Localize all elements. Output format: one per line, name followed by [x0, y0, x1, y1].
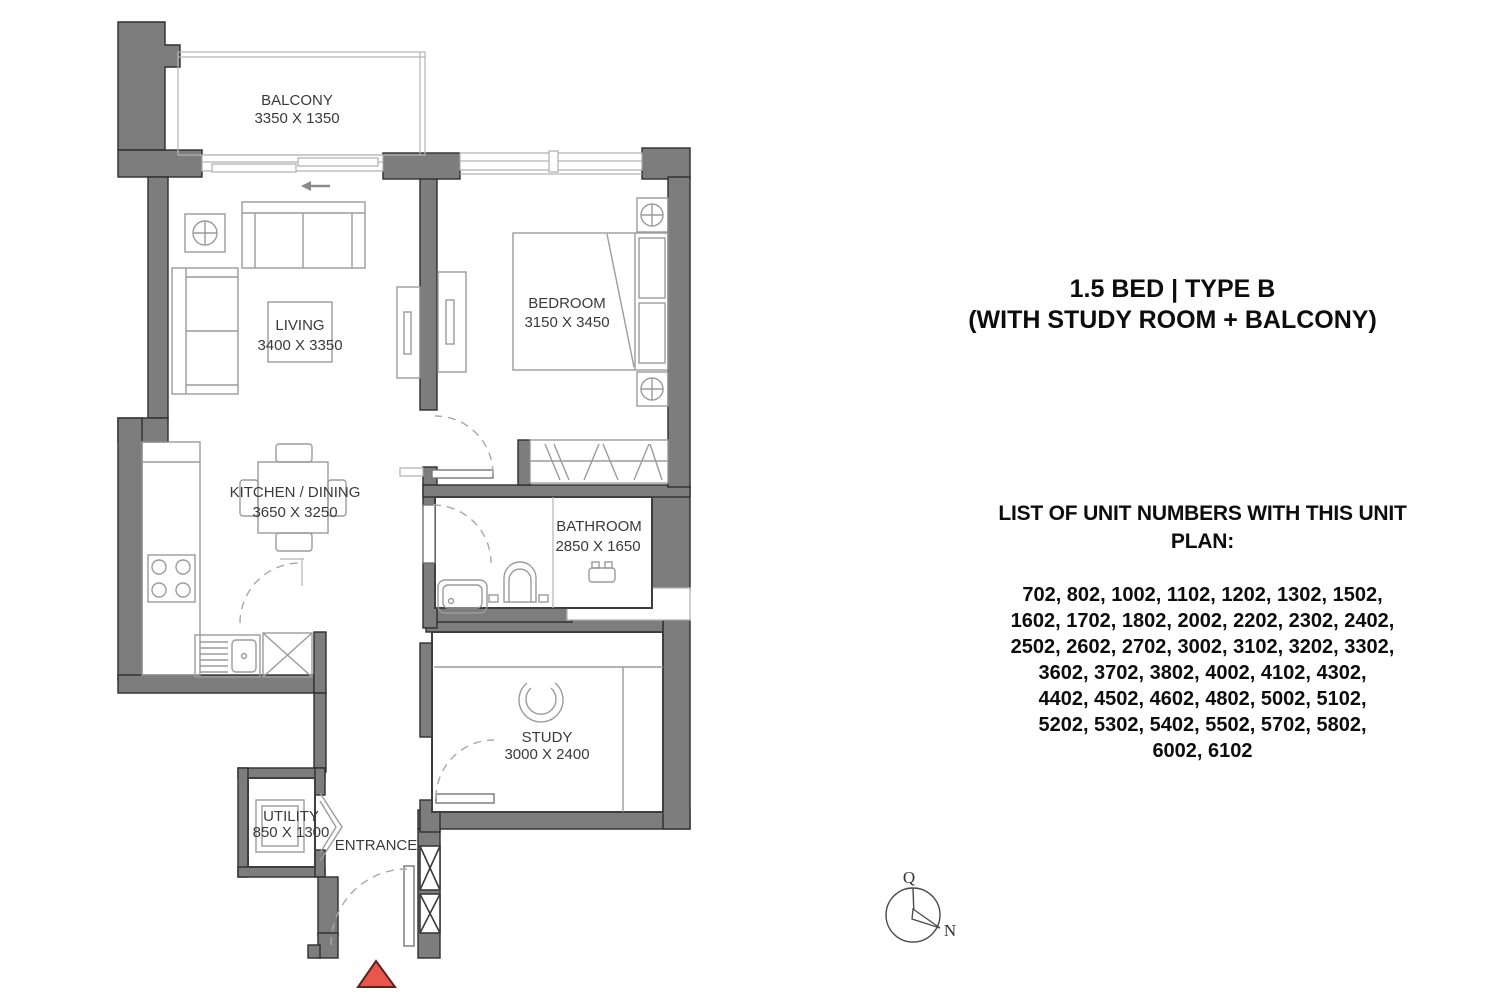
study-room — [432, 632, 663, 812]
unit-list-line: 702, 802, 1002, 1102, 1202, 1302, 1502, — [985, 582, 1420, 608]
unit-list-heading: LIST OF UNIT NUMBERS WITH THIS UNIT PLAN… — [985, 500, 1420, 556]
study-label: STUDY — [522, 729, 573, 746]
nightstand-bottom — [637, 372, 668, 406]
threshold — [400, 468, 423, 476]
bedroom-dims: 3150 X 3450 — [524, 314, 609, 331]
nightstand-top — [637, 198, 668, 232]
plan-title-line1: 1.5 BED | TYPE B — [950, 274, 1395, 305]
living-dims: 3400 X 3350 — [257, 337, 342, 354]
entrance-door-leaf — [404, 866, 414, 946]
sofa — [242, 202, 365, 268]
living-window — [202, 155, 383, 172]
wardrobe — [530, 440, 668, 483]
bedroom-door-leaf — [432, 470, 493, 478]
tv-unit-living — [397, 287, 420, 378]
side-table-lamp — [185, 214, 225, 252]
plan-title-line2: (WITH STUDY ROOM + BALCONY) — [950, 305, 1395, 336]
compass-icon: Q N — [886, 868, 956, 942]
unit-number-list: 702, 802, 1002, 1102, 1202, 1302, 1502, … — [985, 582, 1420, 764]
bedroom-door-arc — [435, 416, 493, 474]
unit-list-line: 4402, 4502, 4602, 4802, 5002, 5102, — [985, 686, 1420, 712]
kitchen-door-arc — [240, 563, 300, 623]
floorplan-flyer: BALCONY 3350 X 1350 LIVING 3400 X 3350 B… — [0, 0, 1500, 1000]
entrance-marker-icon — [358, 961, 395, 987]
entrance-label: ENTRANCE — [335, 837, 418, 854]
dresser-bedroom — [438, 272, 466, 372]
unit-list-line: 3602, 3702, 3802, 4002, 4102, 4302, — [985, 660, 1420, 686]
unit-list-line: 2502, 2602, 2702, 3002, 3102, 3202, 3302… — [985, 634, 1420, 660]
bathroom-dims: 2850 X 1650 — [555, 538, 640, 555]
bathroom-label: BATHROOM — [556, 518, 642, 535]
stove — [148, 555, 195, 602]
compass-north-label: N — [944, 921, 956, 940]
unit-list-heading-line1: LIST OF UNIT NUMBERS WITH THIS UNIT — [985, 500, 1420, 528]
utility-label: UTILITY — [263, 808, 319, 825]
bedroom-label: BEDROOM — [528, 295, 606, 312]
study-door-leaf — [436, 794, 494, 803]
kitchen-counter — [142, 442, 200, 675]
bathroom-door-leaf — [423, 505, 435, 563]
kitchen-label: KITCHEN / DINING — [230, 484, 361, 501]
balcony-label: BALCONY — [261, 92, 333, 109]
plan-title: 1.5 BED | TYPE B (WITH STUDY ROOM + BALC… — [950, 274, 1395, 336]
compass-q-label: Q — [903, 868, 915, 887]
living-label: LIVING — [275, 317, 324, 334]
entrance-door-arc — [331, 869, 407, 945]
unit-list-line: 5202, 5302, 5402, 5502, 5702, 5802, — [985, 712, 1420, 738]
balcony-slider-arrow-icon — [301, 181, 330, 191]
unit-list-heading-line2: PLAN: — [985, 528, 1420, 556]
loveseat — [172, 268, 238, 394]
study-dims: 3000 X 2400 — [504, 746, 589, 763]
utility-dims: 850 X 1300 — [253, 824, 330, 841]
bedroom-window — [460, 151, 642, 174]
service-shafts — [420, 846, 440, 933]
kitchen-cabinet — [263, 633, 312, 677]
kitchen-sink — [195, 635, 260, 677]
unit-list-line: 1602, 1702, 1802, 2002, 2202, 2302, 2402… — [985, 608, 1420, 634]
balcony-dims: 3350 X 1350 — [254, 110, 339, 127]
unit-list-line: 6002, 6102 — [985, 738, 1420, 764]
kitchen-dims: 3650 X 3250 — [252, 504, 337, 521]
